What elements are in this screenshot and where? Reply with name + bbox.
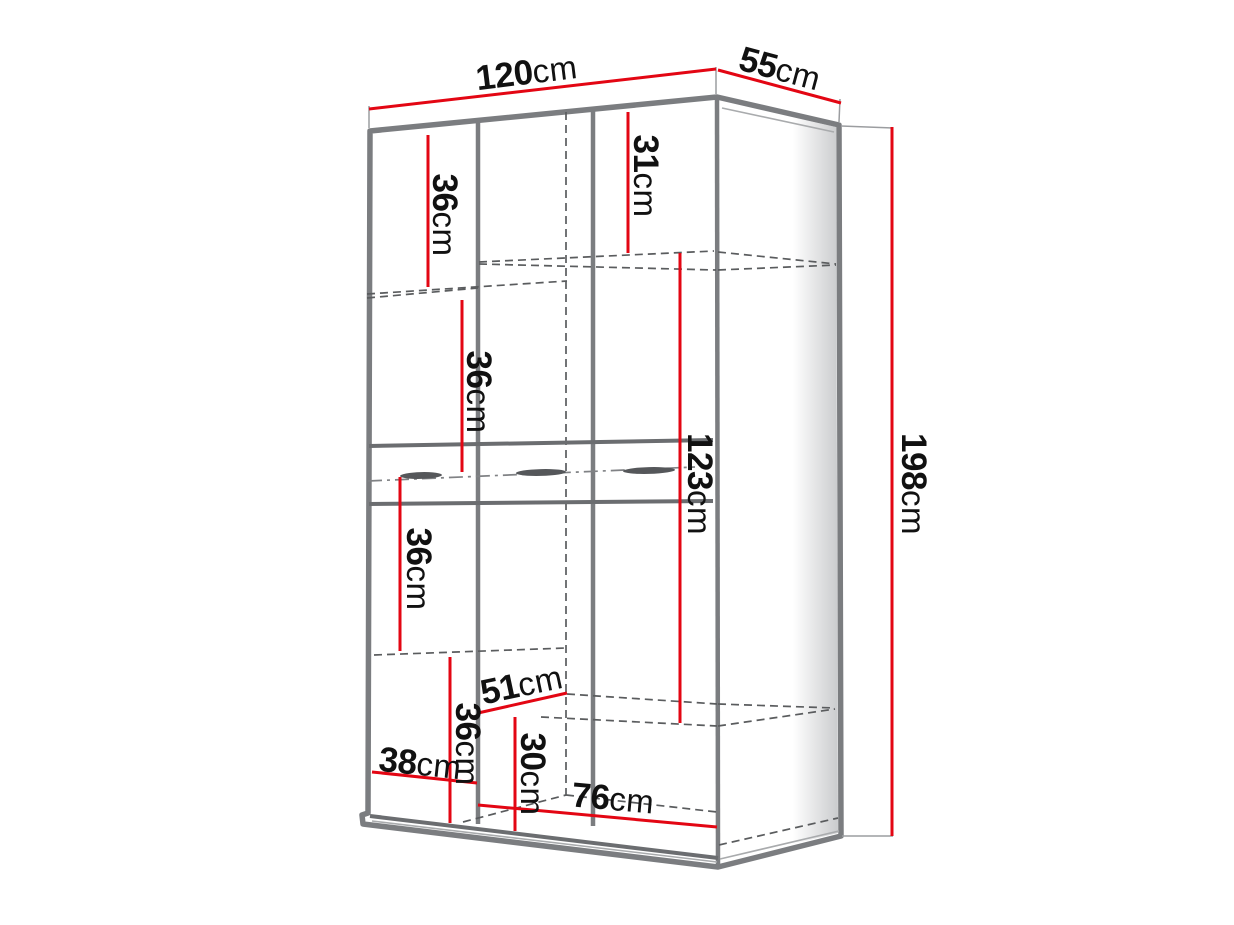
dim-label-31-top-right: 31cm — [626, 135, 665, 218]
dim-label-30-bottom: 30cm — [513, 733, 552, 816]
diagram-canvas: 120cm 55cm 198cm 36cm 31cm 36cm 123cm 36… — [0, 0, 1234, 925]
dim-label-depth-55: 55cm — [735, 39, 825, 98]
dim-label-36-third: 36cm — [399, 528, 438, 611]
drawer-handle-center — [516, 468, 566, 476]
lower-left-shelf-dashed — [374, 648, 566, 655]
drawer-bottom-line — [369, 501, 713, 504]
dim-label-36-top-left: 36cm — [425, 174, 464, 257]
dim-label-51-shelf-depth: 51cm — [477, 657, 566, 712]
wardrobe-dimension-diagram: 120cm 55cm 198cm 36cm 31cm 36cm 123cm 36… — [0, 0, 1234, 925]
dim-label-width-120: 120cm — [474, 47, 580, 98]
dim-label-76-right-width: 76cm — [570, 776, 656, 822]
drawer-block — [368, 440, 713, 504]
dim-label-36-second: 36cm — [459, 351, 498, 434]
side-panel-shading — [719, 101, 838, 862]
dimension-labels: 120cm 55cm 198cm 36cm 31cm 36cm 123cm 36… — [377, 39, 933, 821]
dim-label-height-198: 198cm — [894, 433, 933, 535]
ext-height-top — [841, 126, 893, 128]
hanging-floor-dashed-front — [541, 717, 717, 726]
plinth-mid-line — [372, 821, 717, 862]
dim-label-123-hanging: 123cm — [680, 433, 719, 535]
drawer-top-line — [369, 440, 713, 446]
drawer-handle-right — [623, 466, 675, 474]
left-shelf-dashed-front — [367, 281, 567, 294]
hanging-floor-dashed-back — [567, 694, 717, 704]
